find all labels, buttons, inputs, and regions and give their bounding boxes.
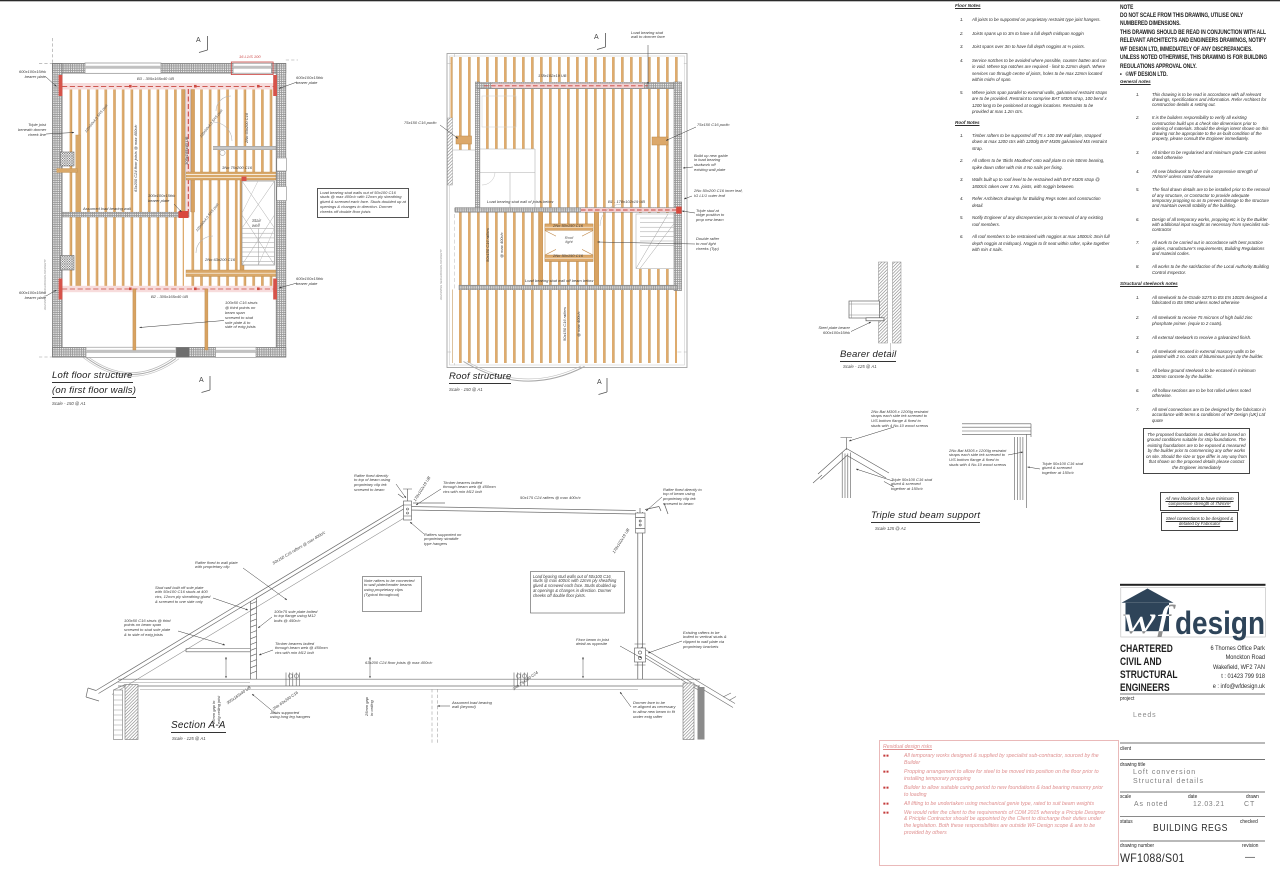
svg-text:design: design xyxy=(1175,605,1265,641)
